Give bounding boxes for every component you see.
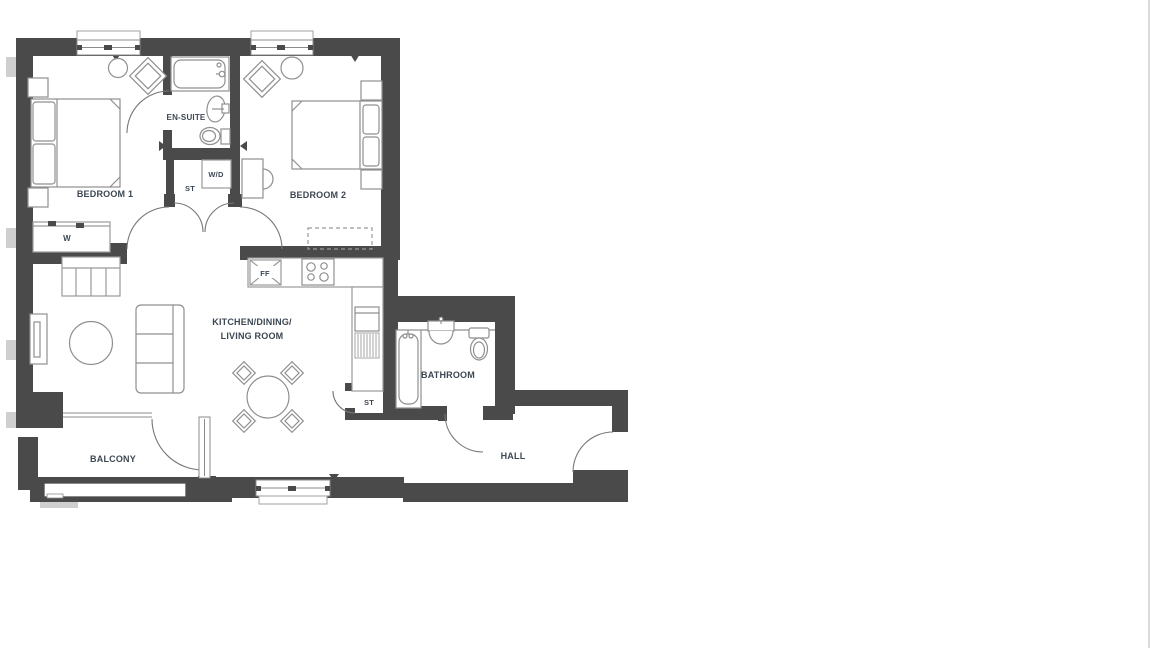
armchair-icon <box>130 58 167 95</box>
room-label-hall: HALL <box>501 451 526 461</box>
floorplan-page: BEDROOM 1 BEDROOM 2 EN-SUITE W/D ST W KI… <box>0 0 1152 648</box>
label-storage-upper: ST <box>185 184 195 193</box>
hob-icon <box>302 259 334 285</box>
door-balcony <box>152 419 203 470</box>
dining-chair-icon <box>281 362 304 385</box>
door-closet-left <box>174 203 203 232</box>
bathtub-icon <box>396 330 421 408</box>
floorplan-drawing: BEDROOM 1 BEDROOM 2 EN-SUITE W/D ST W KI… <box>0 0 1152 648</box>
window-bedroom2 <box>251 31 313 55</box>
door-bathroom <box>445 414 483 452</box>
toilet-icon <box>469 328 489 360</box>
stool-icon <box>109 59 128 78</box>
sink-icon <box>428 317 454 344</box>
room-label-bedroom1: BEDROOM 1 <box>77 189 133 199</box>
coffee-table-icon <box>70 322 113 365</box>
balcony-railing <box>44 483 186 498</box>
door-bedroom2 <box>240 207 282 249</box>
label-fridge-freezer: FF <box>260 269 270 278</box>
armchair-icon <box>244 61 281 98</box>
bathtub-icon <box>171 57 229 91</box>
room-label-balcony: BALCONY <box>90 454 136 464</box>
dining-chair-icon <box>233 362 256 385</box>
dining-chair-icon <box>233 410 256 433</box>
tv-unit-icon <box>30 314 47 364</box>
future-wardrobe-dashed <box>308 228 372 249</box>
desk-icon <box>242 159 273 198</box>
window-bedroom1 <box>77 31 140 55</box>
sink-icon <box>205 95 229 123</box>
wardrobe-icon <box>33 221 110 252</box>
dining-chair-icon <box>281 410 304 433</box>
sofa-icon <box>136 305 184 393</box>
door-closet-right <box>205 203 234 232</box>
bed-icon <box>292 101 382 169</box>
label-storage-lower: ST <box>364 398 374 407</box>
toilet-icon <box>200 128 230 145</box>
room-label-living-line2: LIVING ROOM <box>221 331 284 341</box>
stool-icon <box>281 57 303 79</box>
dining-table-icon <box>247 376 289 418</box>
room-label-bathroom: BATHROOM <box>421 370 475 380</box>
room-label-ensuite: EN-SUITE <box>167 113 206 122</box>
door-ensuite <box>127 91 169 133</box>
window-living <box>256 480 330 504</box>
door-entrance <box>573 432 613 472</box>
bed-icon <box>31 99 120 187</box>
room-label-bedroom2: BEDROOM 2 <box>290 190 346 200</box>
room-label-living-line1: KITCHEN/DINING/ <box>212 317 292 327</box>
label-wardrobe: W <box>63 234 71 243</box>
sideboard-icon <box>62 257 120 296</box>
door-bedroom1 <box>127 207 169 249</box>
label-washer-dryer: W/D <box>208 170 224 179</box>
page-edge-artifacts <box>1148 0 1150 648</box>
